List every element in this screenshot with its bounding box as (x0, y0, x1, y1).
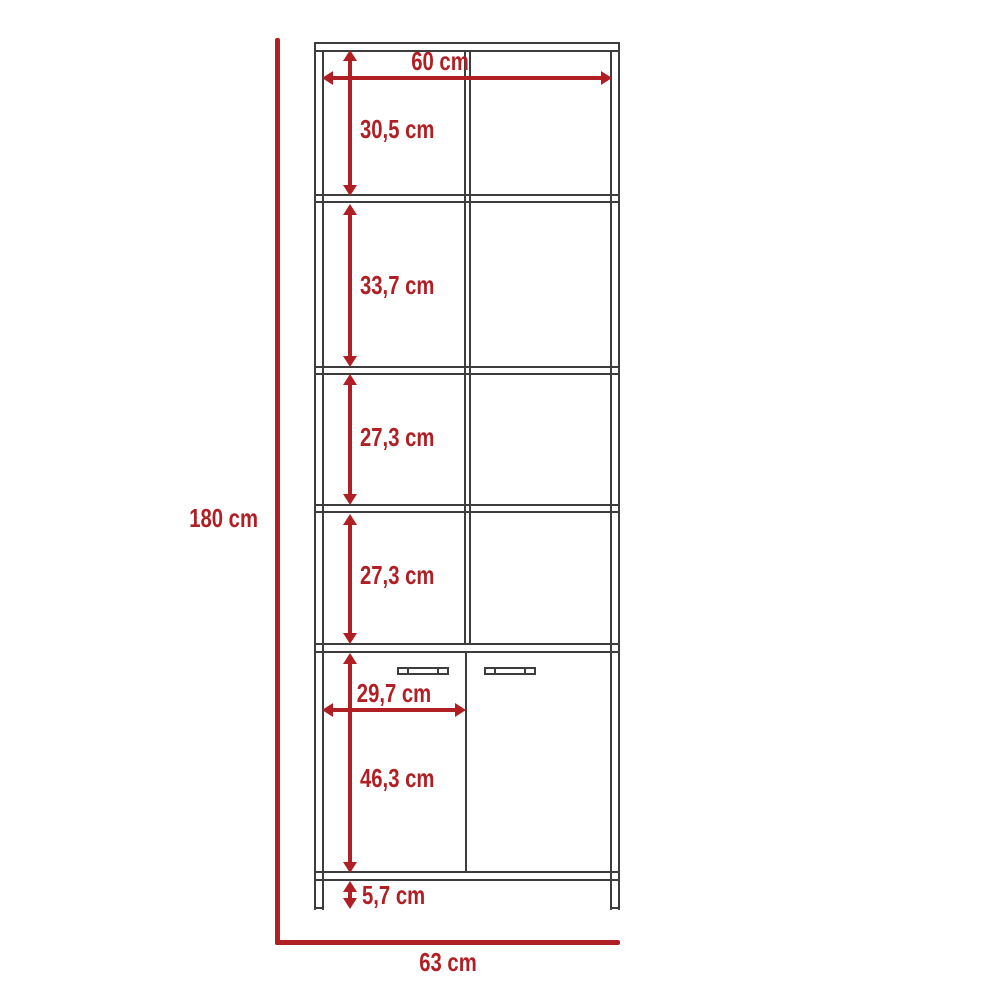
cabinet-left-inner-panel-line (322, 50, 324, 910)
left-leg (314, 879, 324, 909)
compartment-4-height-label: 27,3 cm (360, 562, 434, 588)
compartment-3-height-arrow (343, 374, 357, 505)
right-leg (610, 879, 620, 909)
overall-height-extension-line (275, 38, 280, 945)
compartment-1-height-label: 30,5 cm (360, 116, 434, 142)
handle-end-tick (437, 669, 439, 673)
door-gap-line (465, 653, 467, 871)
bottom-panel (315, 871, 619, 881)
leg-height-label: 5,7 cm (362, 882, 425, 908)
overall-width-extension-line (275, 940, 620, 945)
handle-end-tick (494, 669, 496, 673)
door-width-label: 29,7 cm (355, 680, 433, 706)
cabinet-right-outer-panel-line (618, 42, 620, 910)
door-height-label: 46,3 cm (360, 765, 434, 791)
cabinet-left-outer-panel-line (314, 42, 316, 910)
handle-end-tick (407, 669, 409, 673)
cabinet-top-outer-line (314, 42, 620, 44)
overall-width-label: 63 cm (409, 949, 487, 975)
cabinet-right-inner-panel-line (610, 50, 612, 910)
center-divider (464, 50, 471, 645)
compartment-4-height-arrow (343, 514, 357, 644)
compartment-1-height-arrow (343, 50, 357, 196)
handle-end-tick (524, 669, 526, 673)
furniture-dimension-diagram: 60 cm 30,5 cm 33,7 cm 27,3 cm 27,3 cm 29… (0, 0, 1000, 1000)
left-door-handle (397, 667, 449, 675)
overall-height-label: 180 cm (180, 505, 258, 531)
compartment-2-height-arrow (343, 204, 357, 367)
compartment-2-height-label: 33,7 cm (360, 272, 434, 298)
compartment-3-height-label: 27,3 cm (360, 424, 434, 450)
leg-height-arrow (343, 881, 357, 909)
right-door-handle (484, 667, 536, 675)
inner-width-label: 60 cm (401, 48, 479, 74)
